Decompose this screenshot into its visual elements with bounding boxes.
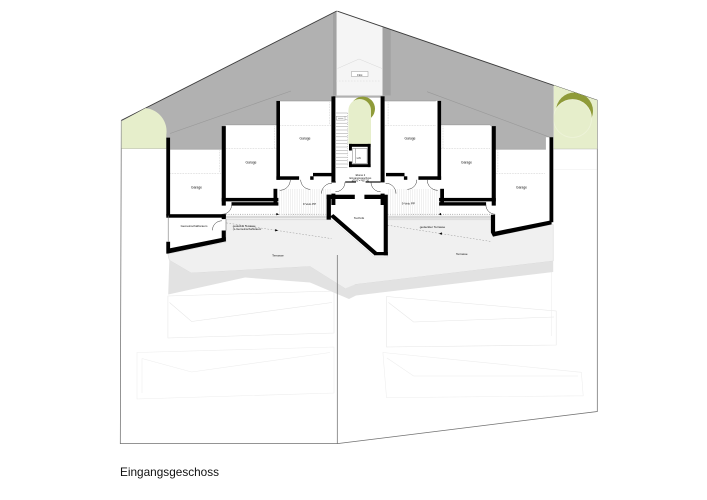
svg-text:First: First [357, 73, 362, 77]
svg-text:Garage: Garage [516, 185, 527, 189]
svg-text:Gemeinschaftsraum: Gemeinschaftsraum [181, 224, 208, 228]
svg-text:Terrasse: Terrasse [272, 253, 284, 257]
svg-text:Garage: Garage [300, 137, 311, 141]
svg-text:9 Velo PP: 9 Velo PP [303, 202, 316, 206]
svg-text:Garage: Garage [191, 185, 202, 189]
svg-text:(L-Gemeinschaftsraum: (L-Gemeinschaftsraum [233, 227, 262, 231]
svg-text:Garage: Garage [246, 161, 257, 165]
svg-text:Eingangsgeschoss: Eingangsgeschoss [120, 465, 219, 479]
svg-text:Technik: Technik [354, 216, 365, 220]
svg-text:9 Velo PP: 9 Velo PP [402, 202, 415, 206]
svg-text:Terrasse: Terrasse [456, 252, 468, 256]
svg-text:gedeckter Terrasse: gedeckter Terrasse [420, 225, 446, 229]
svg-text:Lift: Lift [357, 156, 361, 160]
svg-text:±0.00 = 457.30: ±0.00 = 457.30 [352, 179, 370, 183]
svg-text:Garage: Garage [461, 161, 472, 165]
svg-text:Garage: Garage [405, 137, 416, 141]
